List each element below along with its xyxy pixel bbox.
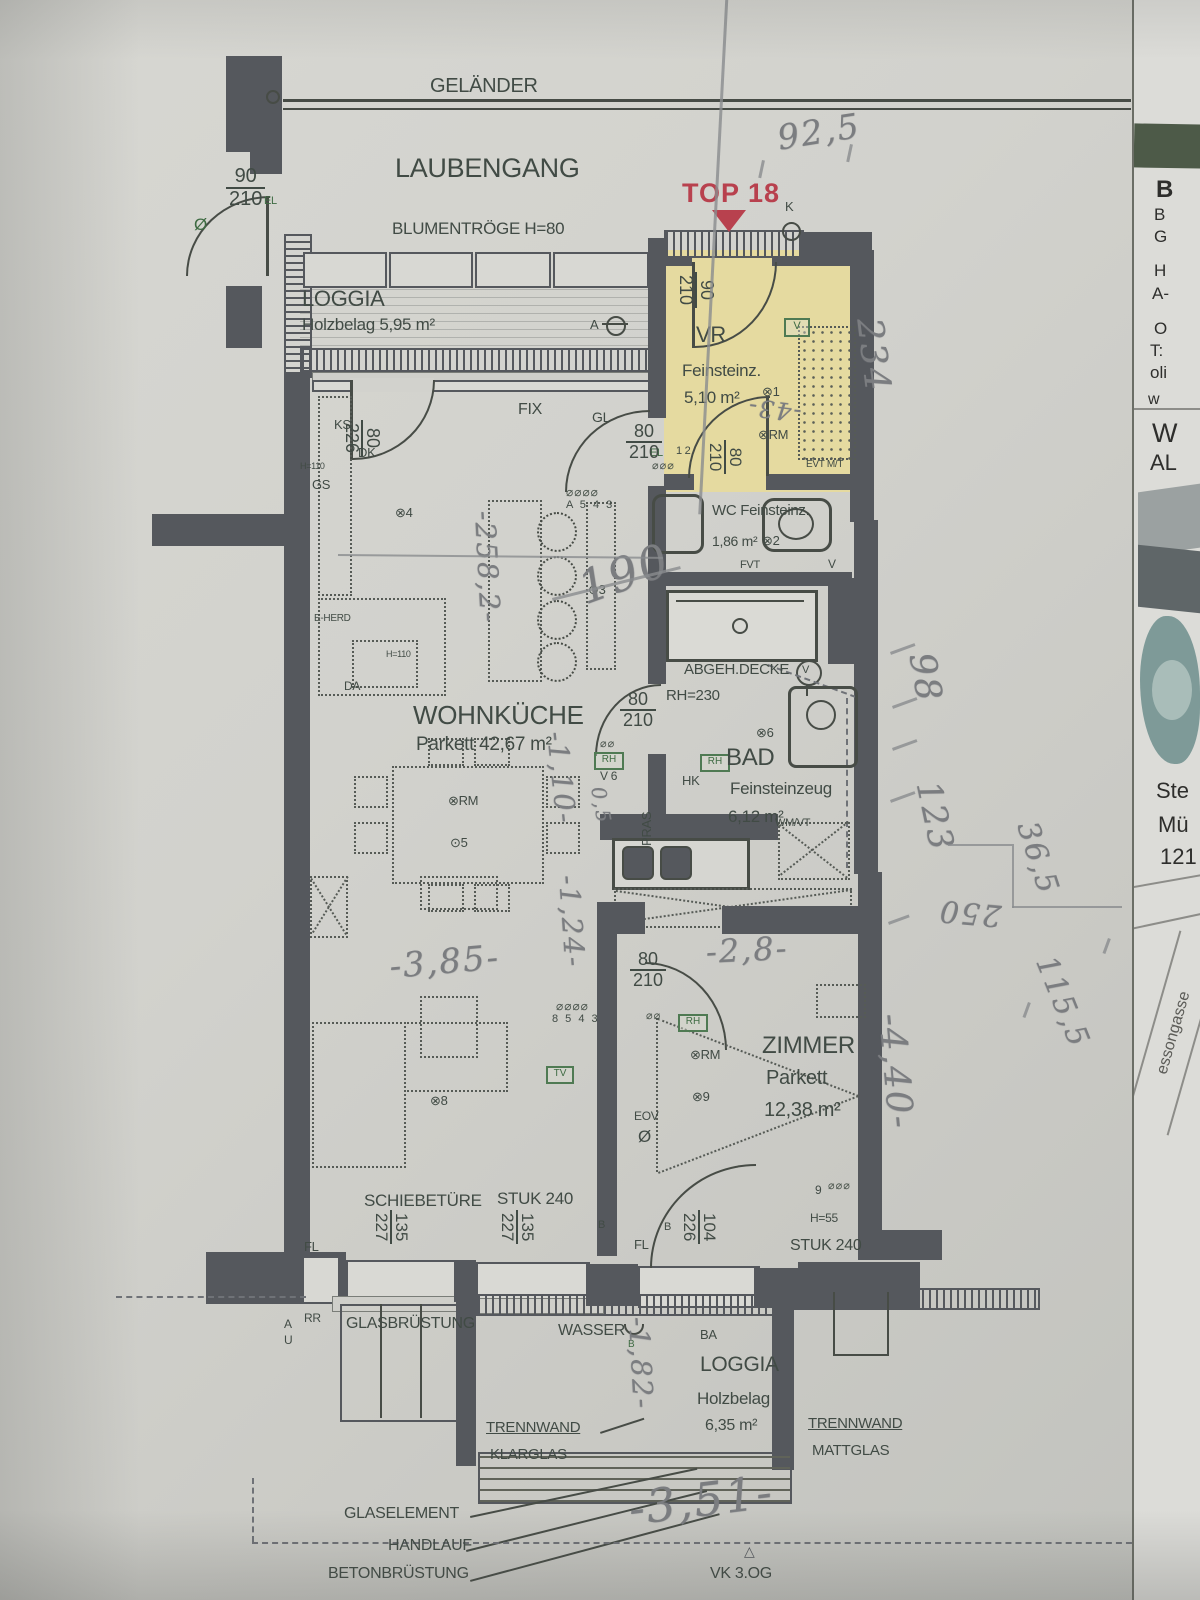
loggia-bottom-label: LOGGIA — [700, 1354, 779, 1375]
hw-234: 234 — [850, 316, 895, 395]
railing-end-icon — [266, 90, 280, 104]
au-label: U — [284, 1334, 292, 1346]
socket-row-icon: ⌀⌀⌀⌀ — [566, 486, 599, 498]
door-leaf — [266, 196, 269, 276]
side-text: O — [1154, 320, 1167, 337]
top18-label: TOP 18 — [682, 180, 780, 207]
sink-basin — [660, 846, 692, 880]
side-text: A- — [1152, 285, 1169, 302]
side-text: B — [1156, 178, 1173, 202]
trennwand-klarglas: KLARGLAS — [490, 1447, 567, 1462]
pencil-bracket — [948, 844, 1012, 846]
side-text: B — [1154, 206, 1165, 223]
b-label: B — [598, 1220, 605, 1231]
chair — [354, 822, 388, 854]
zimmer-window-size: 104226 — [680, 1210, 718, 1244]
da-label: DA — [344, 680, 360, 692]
wall — [454, 1260, 476, 1302]
dining-table — [392, 766, 544, 884]
fvt-label: FVT — [740, 560, 760, 571]
evt-label: EVT M/T — [806, 460, 843, 470]
wall-hatched — [300, 348, 650, 372]
pras-label: PRAS — [640, 812, 653, 846]
trennwand-line — [833, 1354, 889, 1356]
au-label: A — [284, 1318, 292, 1330]
smoke-detector: ⊗RM — [690, 1048, 720, 1061]
wc-label: WC Feinsteinz. — [712, 503, 810, 518]
zimmer-floor: Parkett — [766, 1068, 827, 1088]
hw-258-2: -258,2- — [470, 510, 504, 624]
hw-1-24: -1,24- — [554, 874, 588, 969]
vr-area-label: 5,10 m² — [684, 389, 740, 406]
oe-symbol: Ø — [194, 216, 207, 233]
zimmer-label: ZIMMER — [762, 1034, 855, 1058]
socket-row-icon: ⌀⌀⌀⌀ — [556, 1000, 589, 1012]
trennwand-mattglas: TRENNWAND — [808, 1416, 902, 1431]
loggia-bottom-floor: Holzbelag — [697, 1390, 770, 1407]
flower-trough — [475, 252, 551, 288]
eov-label: EOV — [634, 1110, 658, 1122]
chair — [546, 822, 580, 854]
wall — [664, 572, 852, 586]
hw-0-5: 0,5 — [588, 785, 614, 826]
blumentroege-label: BLUMENTRÖGE H=80 — [392, 220, 564, 237]
gelaender-label: GELÄNDER — [430, 76, 538, 96]
smoke-detector: ⊗RM — [758, 428, 788, 441]
zimmer-area: 12,38 m² — [764, 1100, 841, 1120]
kd-symbol-line — [602, 323, 628, 325]
loggia-bottom-area: 6,35 m² — [705, 1418, 757, 1434]
bathtub-line — [676, 600, 804, 602]
vr-wardrobe — [798, 326, 856, 460]
side-text: G — [1154, 228, 1167, 245]
side-text: oli — [1150, 364, 1167, 381]
wohnkueche-floor: Parkett 42,67 m² — [416, 735, 552, 754]
hw-98: 98 — [903, 650, 947, 705]
h55-label: H=55 — [810, 1212, 838, 1224]
side-text: Mü — [1158, 814, 1189, 836]
shower-drain-icon — [806, 700, 836, 730]
coffee-table — [420, 996, 478, 1058]
entrance-door-size: 90210 — [226, 166, 265, 210]
stuk-label: STUK 240 — [497, 1190, 573, 1207]
wall — [597, 930, 617, 1256]
side-text: H — [1154, 262, 1166, 279]
trennwand-line — [887, 1292, 889, 1356]
flower-trough — [303, 252, 387, 288]
socket-9b: 9 — [815, 1184, 821, 1196]
fl-label: FL — [304, 1240, 319, 1253]
socket-2: ⊗2 — [762, 534, 780, 547]
smoke-detector: ⊗RM — [448, 794, 478, 807]
bar-stool — [537, 642, 577, 682]
abgeh-decke-label: ABGEH.DECKE — [684, 662, 789, 677]
ks-label: KS — [334, 418, 351, 431]
socket-row-icon: ⌀⌀ — [646, 1010, 661, 1021]
pencil-bracket — [1012, 906, 1122, 908]
card-edge-line — [1132, 873, 1200, 889]
el-label: EL — [264, 196, 277, 207]
ba-label: BA — [700, 1328, 717, 1341]
teal-image-fragment — [1152, 660, 1192, 720]
b-label: B — [664, 1222, 671, 1233]
fix-window-label: FIX — [518, 402, 542, 418]
sideboard — [420, 876, 498, 910]
rh-box: RH — [594, 752, 624, 770]
side-text: 121 — [1160, 846, 1197, 868]
gl-label: GL — [592, 410, 610, 424]
stuk-label: STUK 240 — [790, 1238, 861, 1254]
kitchen-appliance — [352, 640, 418, 688]
side-text: w — [1148, 392, 1160, 408]
socket-5: ⊙5 — [450, 836, 468, 849]
wall — [828, 578, 854, 664]
h110b-label: H=110 — [386, 650, 411, 659]
socket-8: ⊗8 — [430, 1094, 448, 1107]
trennwand-klarglas: TRENNWAND — [486, 1420, 580, 1435]
wall — [766, 474, 852, 490]
oe-symbol: Ø — [638, 1128, 651, 1145]
kitchen-door-size: 80210 — [626, 422, 662, 462]
wardrobe — [816, 984, 866, 1018]
rr-label: RR — [304, 1312, 321, 1324]
glasbruestung-label: GLASBRÜSTUNG — [346, 1316, 475, 1332]
hw-1-82: -1,82- — [624, 1316, 657, 1411]
wall-hatched — [794, 1288, 1040, 1310]
zimmer-door-size: 80210 — [630, 950, 666, 990]
wall — [152, 514, 286, 546]
betonbruestung-label: BETONBRÜSTUNG — [328, 1566, 469, 1582]
sink-basin — [622, 846, 654, 880]
bad-label: BAD — [726, 746, 774, 770]
bar-stool — [537, 600, 577, 640]
socket-6: ⊗6 — [756, 726, 774, 739]
glaselement-label: GLASELEMENT — [344, 1506, 459, 1522]
rh-box: RH — [678, 1014, 708, 1032]
vk-label: VK 3.OG — [710, 1566, 772, 1582]
v-label: V — [828, 558, 836, 570]
level-marker-icon: △ — [744, 1544, 755, 1560]
wc-area: 1,86 m² — [712, 534, 757, 548]
h110-label: H=110 — [300, 462, 325, 471]
flower-trough — [553, 252, 649, 288]
window-size-135: 135227 — [372, 1210, 410, 1244]
top18-marker-icon — [712, 210, 746, 232]
wall-hatched — [476, 1294, 776, 1316]
socket-4: ⊗4 — [395, 506, 413, 519]
gs-label: GS — [312, 478, 330, 491]
el-circuits: 1 2 — [676, 446, 690, 457]
k-symbol-icon — [782, 222, 801, 241]
flower-trough — [389, 252, 473, 288]
schiebetuere-label: SCHIEBETÜRE — [364, 1192, 482, 1209]
wall — [772, 1302, 794, 1470]
trennwand-line — [833, 1292, 835, 1356]
window-size-135: 135227 — [498, 1210, 536, 1244]
bar-stool — [537, 512, 577, 552]
wall — [226, 56, 282, 152]
kd-symbol-icon — [606, 316, 626, 336]
bed-outline — [656, 1018, 658, 1172]
card-edge-line — [1132, 912, 1200, 931]
vr-door2-size: 80210 — [706, 440, 744, 474]
vk-dashed-line — [252, 1542, 1142, 1544]
socket-row-icon: ⌀⌀⌀ — [828, 1180, 851, 1191]
pencil-bracket — [1012, 844, 1014, 908]
hw-250: 250 — [937, 895, 1003, 930]
loggia-top-label: LOGGIA — [302, 288, 385, 310]
wall — [858, 1230, 942, 1260]
dashed-corner — [252, 1478, 254, 1542]
hw-43: -43- — [746, 395, 803, 425]
socket-row-label: A 5 4 3 — [566, 500, 614, 511]
side-text: T: — [1150, 342, 1163, 359]
sofa — [312, 1022, 406, 1168]
bathtub-drain-icon — [732, 618, 748, 634]
wall — [648, 754, 666, 816]
trennwand-mattglas: MATTGLAS — [812, 1443, 889, 1458]
side-text: AL — [1150, 452, 1177, 474]
side-text: W — [1152, 420, 1177, 447]
side-text: Ste — [1156, 780, 1189, 802]
street-band: essongasse — [1132, 931, 1200, 1136]
street-name: essongasse — [1154, 989, 1194, 1076]
wohnkueche-label: WOHNKÜCHE — [413, 702, 584, 728]
floorplan-photo: GELÄNDER LAUBENGANG BLUMENTRÖGE H=80 TOP… — [0, 0, 1200, 1600]
dashed-edge — [116, 1296, 306, 1298]
rh230-label: RH=230 — [666, 688, 720, 703]
bad-floor: Feinsteinzeug — [730, 780, 832, 797]
socket-9: ⊗9 — [692, 1090, 710, 1103]
side-divider — [1134, 408, 1200, 410]
bath-door-size: 80210 — [620, 690, 656, 730]
wasser-label: WASSER — [558, 1323, 625, 1339]
bar-stool — [537, 556, 577, 596]
hw-2-8: -2,8- — [705, 932, 789, 968]
fl-label: FL — [634, 1238, 649, 1251]
vr-floor-label: Feinsteinz. — [682, 362, 761, 379]
socket-row-label: 8 5 4 3 — [552, 1014, 600, 1025]
tv-box: TV — [546, 1066, 574, 1084]
wall — [284, 372, 310, 1255]
chair — [354, 776, 388, 808]
laubengang-label: LAUBENGANG — [395, 155, 580, 182]
socket-row-icon: ⌀⌀ — [600, 738, 615, 749]
wm-label: WM/VT — [775, 818, 810, 829]
wall — [722, 906, 862, 934]
handlauf-label: HANDLAUF — [388, 1538, 472, 1554]
green-band — [1134, 123, 1200, 168]
loggia-top-floor: Holzbelag 5,95 m² — [302, 316, 435, 333]
wall — [664, 258, 692, 266]
v-circle-label: V — [802, 665, 809, 676]
railing-line — [283, 108, 1131, 110]
dk-label: DK — [358, 446, 375, 459]
eherd-label: E-HERD — [314, 614, 351, 624]
k-label: K — [785, 200, 793, 213]
railing-line — [283, 99, 1131, 102]
hw-1-10: -1,10- — [542, 730, 580, 826]
v6-label: V 6 — [600, 770, 617, 782]
a-label: A — [590, 318, 598, 331]
cube-image-fragment — [1138, 545, 1200, 614]
wall — [772, 258, 852, 266]
v-box: V — [784, 318, 810, 337]
hw-3-85: -3,85- — [388, 940, 501, 984]
underlying-page-strip: B B G H A- O T: oli w W AL Ste Mü 121 es… — [1132, 0, 1200, 1600]
hk-label: HK — [682, 774, 699, 787]
wall — [226, 286, 262, 348]
hw-440: -4,40- — [872, 1012, 918, 1131]
